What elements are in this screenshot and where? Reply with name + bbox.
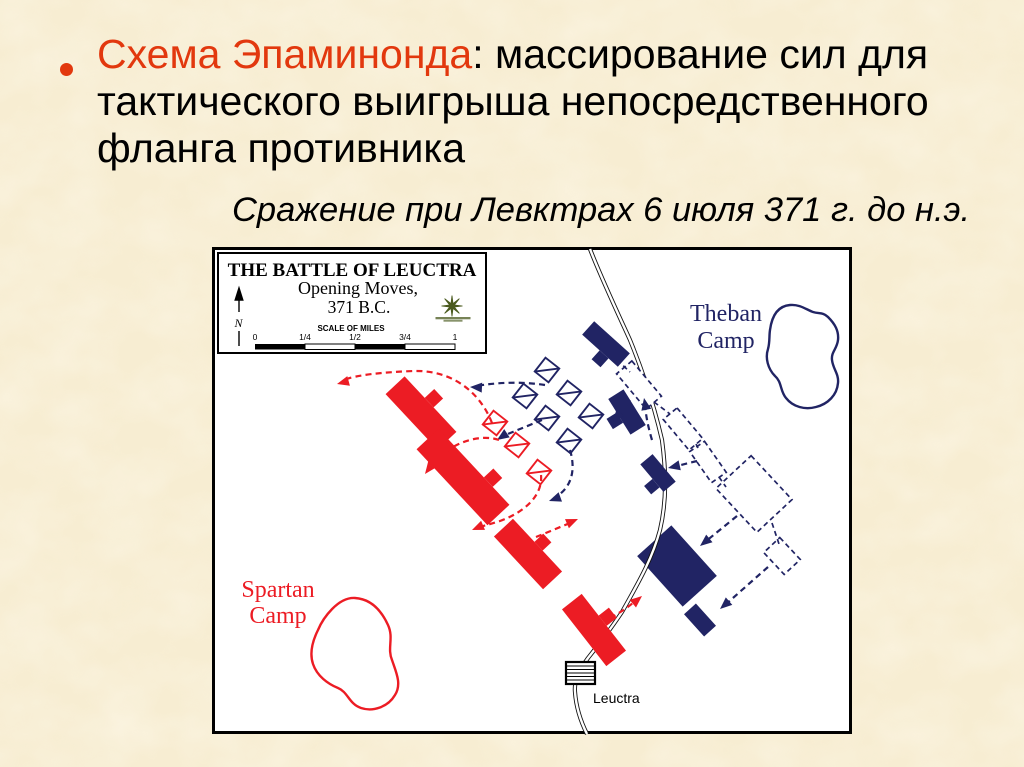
- svg-text:3/4: 3/4: [399, 332, 411, 342]
- svg-text:Camp: Camp: [697, 328, 754, 354]
- svg-text:Theban: Theban: [690, 301, 762, 327]
- svg-text:Opening Moves,: Opening Moves,: [298, 278, 418, 298]
- svg-text:371 B.C.: 371 B.C.: [328, 297, 391, 317]
- svg-text:Leuctra: Leuctra: [593, 690, 640, 706]
- svg-text:0: 0: [253, 332, 258, 342]
- svg-text:1/2: 1/2: [349, 332, 361, 342]
- svg-text:Spartan: Spartan: [241, 577, 314, 603]
- svg-text:1/4: 1/4: [299, 332, 311, 342]
- svg-text:Camp: Camp: [249, 603, 306, 629]
- svg-text:1: 1: [453, 332, 458, 342]
- svg-text:N: N: [234, 316, 244, 330]
